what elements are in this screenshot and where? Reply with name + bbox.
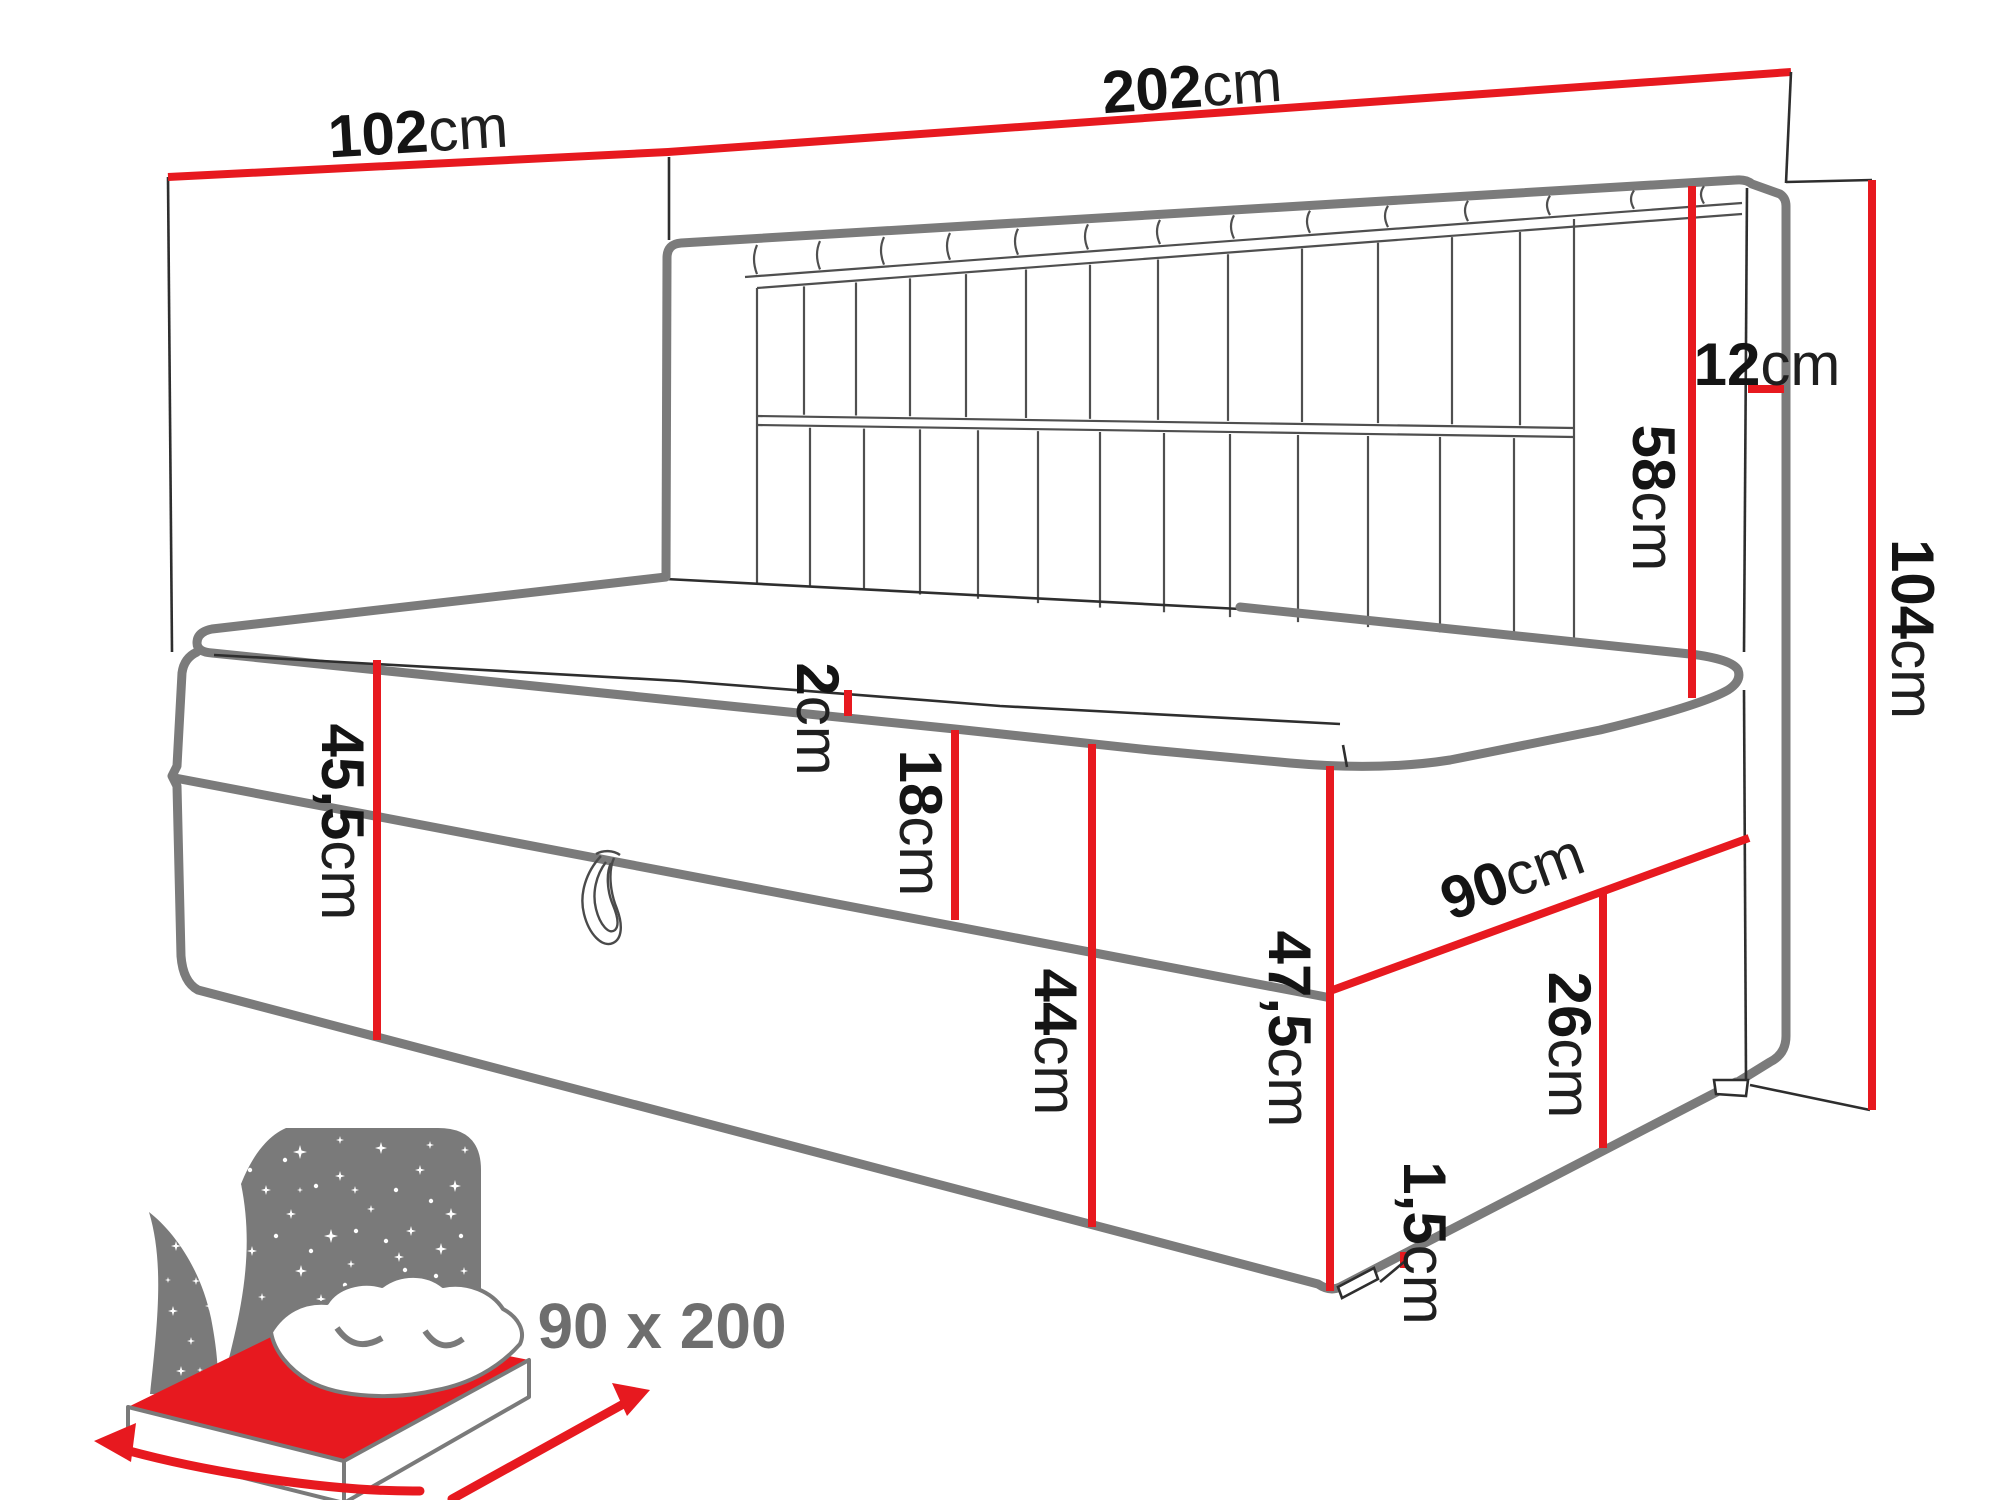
bed-dimension-diagram: 102cm 202cm 12cm 58cm 104cm 45,5cm 2cm 1…: [0, 0, 2000, 1500]
front-foot: [1338, 1268, 1378, 1298]
headboard: [666, 180, 1786, 1083]
dim-front-height-label: 44cm: [1023, 969, 1090, 1116]
dim-height-total-label: 104cm: [1880, 539, 1947, 719]
dim-headboard-above-label: 58cm: [1621, 425, 1688, 572]
headboard-outline: [666, 180, 1786, 1083]
dim-topper-label: 2cm: [785, 662, 852, 775]
icon-width-arrowhead: [94, 1423, 136, 1462]
mattress: [197, 577, 1739, 767]
dim-202-drop-line: [1786, 72, 1791, 183]
diagram-canvas: 102cm 202cm 12cm 58cm 104cm 45,5cm 2cm 1…: [0, 0, 2000, 1500]
wall-left-edge: [168, 177, 172, 652]
dim-foot-height-label: 1,5cm: [1392, 1161, 1459, 1324]
dim-upper-box-label: 18cm: [888, 750, 955, 897]
mattress-back-edge: [666, 579, 1240, 609]
headboard-upper-slats: [804, 232, 1520, 425]
dim-height-top-tick: [1786, 180, 1872, 182]
dim-headboard-depth-label: 12cm: [1694, 331, 1841, 398]
headboard-lower-slats: [810, 428, 1514, 638]
dim-storage-height-label: 26cm: [1537, 972, 1604, 1119]
icon-sleeping-area-label: 90 x 200: [537, 1290, 786, 1362]
right-foot: [1714, 1080, 1748, 1096]
sleeping-area-icon: 90 x 200: [94, 1128, 787, 1500]
dim-bed-width-label: 90cm: [1432, 819, 1593, 932]
dim-length-total-label: 202cm: [1100, 46, 1284, 125]
dim-depth-total-label: 102cm: [326, 92, 510, 170]
box-right-front-edge: [1744, 690, 1746, 1079]
mattress-outline: [197, 577, 1739, 766]
headboard-shelf-line-1: [745, 203, 1742, 277]
headboard-shelf-line-2: [757, 214, 1742, 288]
dim-corner-height-label: 47,5cm: [1257, 931, 1324, 1128]
dim-side-height-label: 45,5cm: [310, 724, 377, 921]
dim-height-bottom-tick: [1750, 1085, 1870, 1110]
headboard-front-right-edge: [1744, 188, 1747, 652]
wall-panel: [168, 157, 669, 652]
